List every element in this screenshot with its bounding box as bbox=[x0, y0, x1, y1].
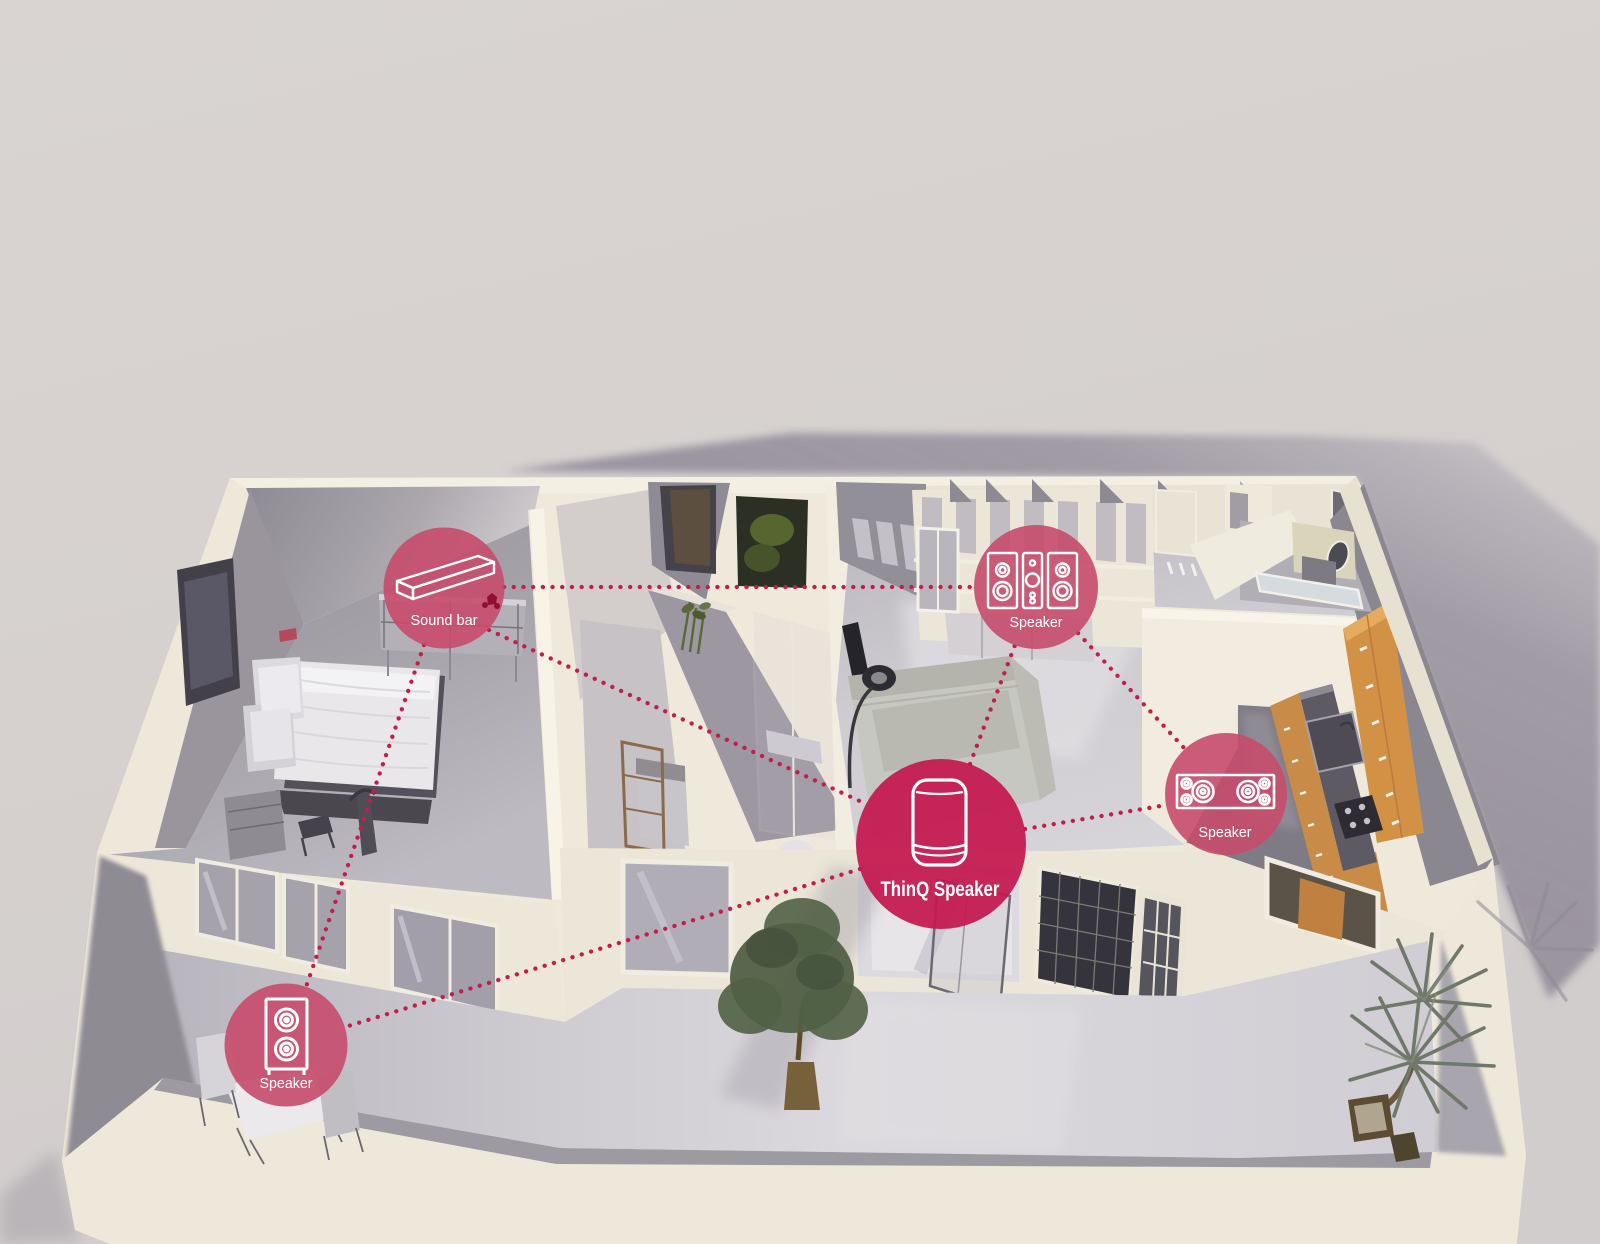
svg-text:Speaker: Speaker bbox=[260, 1075, 313, 1092]
svg-text:Speaker: Speaker bbox=[1010, 614, 1063, 631]
svg-text:Sound bar: Sound bar bbox=[411, 612, 478, 629]
svg-text:ThinQ Speaker: ThinQ Speaker bbox=[881, 877, 1000, 901]
svg-text:Speaker: Speaker bbox=[1199, 824, 1252, 841]
